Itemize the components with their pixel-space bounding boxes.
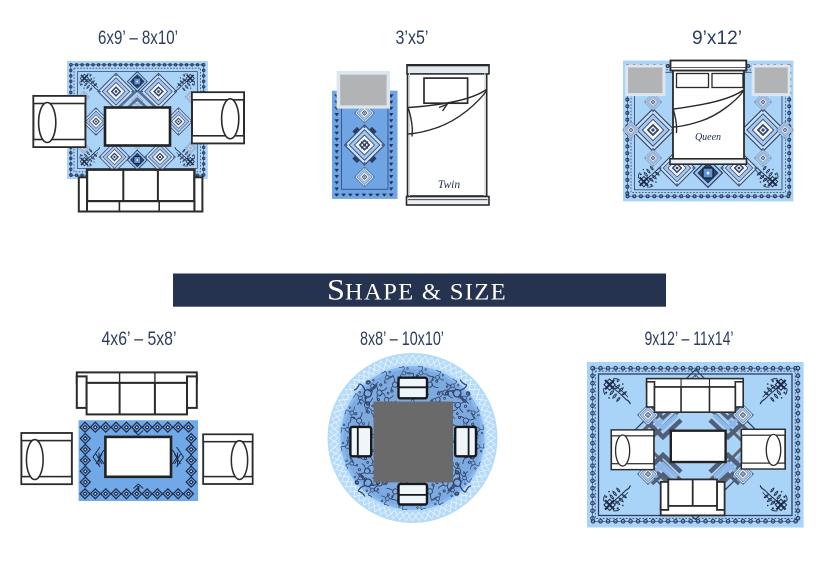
svg-text:9’x12’: 9’x12’ (692, 28, 742, 49)
svg-text:8x8’ – 10x10’: 8x8’ – 10x10’ (360, 329, 444, 350)
svg-text:6x9’ – 8x10’: 6x9’ – 8x10’ (98, 28, 178, 49)
svg-text:Queen: Queen (695, 132, 721, 143)
svg-text:3’x5’: 3’x5’ (396, 28, 429, 49)
svg-text:Twin: Twin (438, 179, 460, 191)
svg-text:4x6’ – 5x8’: 4x6’ – 5x8’ (102, 329, 177, 350)
svg-text:9x12’ – 11x14’: 9x12’ – 11x14’ (645, 329, 734, 350)
